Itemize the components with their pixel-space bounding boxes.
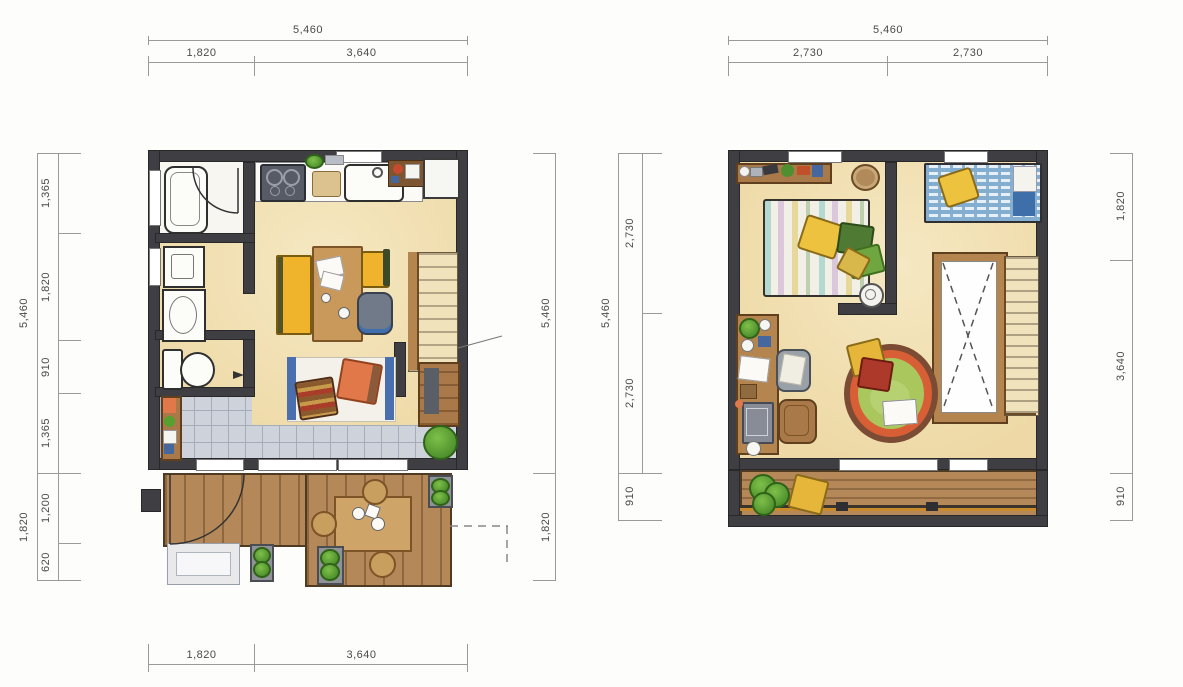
dim-line [728,62,1048,63]
wall [728,150,1048,162]
dim-tick [533,153,556,154]
entrance-step-inner [176,552,231,576]
dim-tick [58,340,81,341]
window [788,151,842,163]
desk-item [759,319,771,331]
sliding-door [258,459,337,471]
shelf-item-white [163,430,177,444]
dim-label: 5,460 [17,281,31,345]
dim-label: 910 [39,335,53,399]
dim-tick [728,36,729,45]
dim-label: 2,730 [888,46,1048,60]
dim-tick [37,153,81,154]
dim-label: 3,640 [255,648,468,662]
staircase-upper [1004,256,1039,416]
stairwell-void [941,261,997,413]
balcony-rail-wood [740,508,1036,511]
washbasin-bowl [171,254,194,279]
dim-label: 2,730 [623,201,637,265]
dim-label: 1,820 [148,648,255,662]
dim-label: 2,730 [623,361,637,425]
dim-label: 3,640 [1114,334,1128,398]
wall [155,233,255,243]
toilet-bowl [180,352,215,388]
deck-stool [311,511,337,537]
wall [728,515,1048,527]
counter-item [325,155,344,165]
desk-item [746,441,761,456]
table-item [321,293,331,303]
deck-stool [369,551,396,578]
dim-tick [533,580,556,581]
dim-line [1132,153,1133,520]
dim-label: 1,820 [39,255,53,319]
dim-tick [1110,260,1133,261]
desk-item-orange [735,400,743,408]
balcony-plant [752,492,776,516]
dim-label: 1,820 [148,46,255,60]
deck-stool [362,479,388,505]
dim-label: 1,820 [1114,174,1128,238]
dim-tick [58,393,81,394]
desk-box [740,384,757,399]
dim-tick [467,36,468,45]
dim-tick [618,153,662,154]
shelf-item-plant [164,416,175,427]
shelf-item-blue [164,444,174,454]
deck-table-item [371,517,385,531]
rug-stripe [385,357,394,420]
desk-papers [738,355,771,382]
planter-plant [253,561,271,578]
dim-tick [37,473,81,474]
stove-burner [270,186,280,196]
shelf-item [812,165,823,177]
dim-label: 1,820 [539,495,553,559]
window [944,151,988,163]
dim-label: 3,640 [255,46,468,60]
desk-plant [739,318,760,339]
stove-burner [266,169,283,186]
entry-tile-floor [160,425,456,458]
wall [243,162,255,294]
cushion-striped [294,376,339,421]
potted-plant [423,425,458,460]
sliding-door [196,459,244,471]
desk-cup [741,339,754,352]
floor-plan-drawing: 5,460 1,820 3,640 5,460 2,730 2,730 1,82… [0,0,1183,687]
dim-line [148,62,468,63]
shelf-item [739,166,750,177]
stove-burner [283,169,300,186]
dim-label: 910 [623,464,637,528]
dim-line [58,153,59,580]
dim-label: 1,365 [39,401,53,465]
wall [885,162,897,315]
stove [260,164,306,202]
dim-tick [148,36,149,45]
dim-tick [1047,36,1048,45]
boundary-dashed-line [450,526,508,566]
cabinet-item-white [405,164,420,179]
desk-item-blue [758,336,771,347]
sliding-door [338,459,408,471]
dim-label: 5,460 [599,281,613,345]
window [949,459,988,471]
faucet [372,167,383,178]
dim-label: 5,460 [539,281,553,345]
window [149,170,161,226]
dim-line [555,153,556,580]
chair-inner [784,405,809,436]
dim-label: 620 [39,530,53,594]
planter-plant [431,490,450,506]
dim-tick [533,473,556,474]
laundry-sink-bowl [169,296,197,334]
refrigerator [423,158,460,199]
dining-chair-gray [357,292,393,335]
dim-label: 1,365 [39,161,53,225]
single-bed-sheet [1013,166,1037,192]
dim-label: 5,460 [728,23,1048,37]
single-bed-blanket [1013,192,1035,216]
planter-plant [320,563,340,581]
laptop-screen [746,408,768,436]
deck-table-item [352,507,365,520]
chair-back [383,249,390,286]
floor-stool-center [865,289,876,300]
floor-cushion-red [857,357,894,393]
counter-plant [305,154,324,169]
stove-burner [285,186,295,196]
shelf-item [750,167,763,177]
cabinet-item-red [393,164,403,174]
dim-label: 5,460 [148,23,468,37]
bathtub-inner [170,172,200,226]
dim-tick [1110,153,1133,154]
storage-panel [424,368,439,414]
shelf-item [797,166,810,175]
dim-line [728,40,1048,41]
dining-bench [276,255,312,335]
window [149,248,161,286]
rail-post [836,502,848,511]
dim-label: 1,820 [17,495,31,559]
cutting-board [312,171,341,197]
dim-line [148,40,468,41]
dim-line [148,664,468,665]
basket [851,164,880,191]
table-item [338,307,350,319]
shelf-item-orange [163,398,176,413]
wall-stub [141,489,161,512]
open-book [882,399,918,426]
cabinet-item-blue [391,176,399,183]
dim-label: 910 [1114,464,1128,528]
window [839,459,938,471]
stair-landing-edge [1004,413,1036,415]
wood-deck [163,473,309,547]
dim-line [618,153,619,520]
shelf-item-plant [781,164,794,177]
stair-stringer [408,252,419,370]
cushion-orange [336,358,383,405]
dim-tick [642,313,662,314]
dim-tick [58,543,81,544]
dim-tick [58,233,81,234]
dim-label: 2,730 [728,46,888,60]
dim-line [37,153,38,580]
rail-post [926,502,938,511]
